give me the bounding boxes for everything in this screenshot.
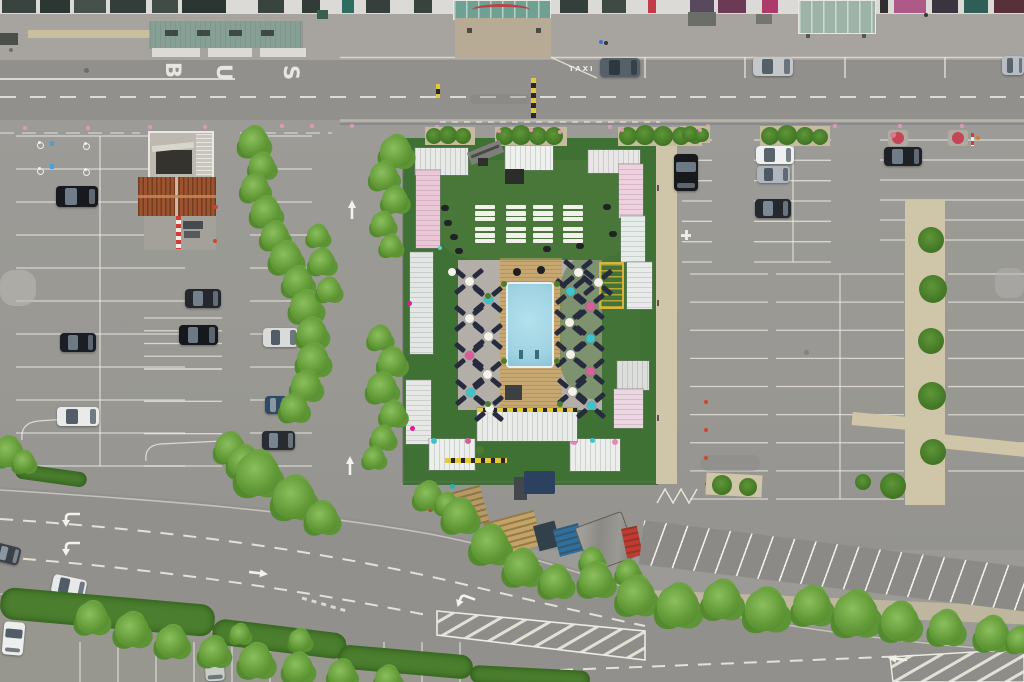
roof-panel: [994, 0, 1024, 13]
picnic-table: [563, 227, 583, 243]
plus-marking: [685, 230, 688, 240]
tree: [283, 653, 313, 682]
tree: [239, 644, 273, 678]
accent: [465, 438, 471, 444]
platform-gap: [252, 48, 260, 57]
bush: [918, 382, 946, 410]
wheelchair-marking-icon: [36, 141, 45, 150]
picnic-table: [475, 205, 495, 221]
plant: [476, 446, 484, 454]
flower: [620, 128, 624, 132]
flower: [698, 128, 702, 132]
roof-panel: [2, 0, 36, 13]
bollard: [86, 126, 89, 129]
picnic-table: [475, 227, 495, 243]
tree: [371, 212, 395, 236]
tree: [199, 637, 229, 667]
tree: [363, 447, 385, 469]
teal-marker: [438, 246, 442, 250]
tree: [13, 451, 35, 473]
roof-panel: [414, 0, 432, 13]
bollard: [148, 125, 151, 128]
lounger-group: [576, 391, 606, 419]
bean-bag: [441, 205, 449, 211]
bean-bag: [609, 231, 617, 237]
red-marker: [213, 239, 217, 243]
shopping-carts: [184, 231, 200, 238]
car: [755, 199, 791, 218]
bush: [919, 275, 947, 303]
bush: [880, 473, 906, 499]
pavement-patch: [0, 270, 36, 306]
bistro-table: [513, 268, 521, 276]
post: [806, 34, 810, 38]
car: [57, 407, 99, 426]
round-table: [448, 268, 456, 276]
bean-bag: [455, 248, 463, 254]
yellow-curb: [445, 458, 507, 463]
car: [56, 186, 98, 207]
crate: [450, 484, 455, 489]
bush: [918, 227, 944, 253]
container-bar: [406, 380, 431, 444]
aerial-parking-lot-photo: BUS TAXI: [0, 0, 1024, 682]
bollard: [23, 126, 26, 129]
entry-mat: [478, 158, 488, 166]
tree: [378, 348, 406, 376]
car: [674, 154, 698, 191]
tree: [156, 626, 188, 658]
bollard: [310, 124, 313, 127]
bollard: [833, 124, 836, 127]
bean-bag: [444, 220, 452, 226]
bush: [855, 474, 871, 490]
cone: [976, 136, 980, 140]
pedestrian: [604, 41, 608, 45]
container-bar: [410, 252, 433, 354]
pedestrian: [924, 13, 928, 17]
car: [884, 147, 922, 166]
bollard: [280, 124, 283, 127]
column: [467, 28, 472, 33]
roof-panel: [560, 0, 588, 13]
plant: [485, 401, 491, 407]
bean-bag: [576, 243, 584, 249]
bistro-table: [537, 266, 545, 274]
tree: [471, 526, 509, 564]
pool-rail: [519, 350, 523, 359]
bean-bag: [603, 204, 611, 210]
roof-panel: [152, 0, 178, 13]
tree: [834, 592, 878, 636]
tree: [881, 603, 919, 641]
roof-panel: [880, 0, 888, 13]
bollard: [960, 124, 963, 127]
car: [756, 146, 794, 164]
bush: [653, 126, 673, 146]
tree: [370, 162, 398, 190]
canopy-tent: [524, 471, 555, 494]
shelter-seat: [229, 30, 242, 36]
container-bar: [627, 262, 652, 309]
pool-rail: [535, 350, 539, 359]
bush: [777, 125, 797, 145]
shelter-seat: [165, 30, 178, 36]
bush: [918, 328, 944, 354]
tree: [793, 587, 831, 625]
car: [185, 289, 221, 308]
car: [757, 166, 790, 183]
flower: [497, 129, 501, 133]
platform-gap: [200, 48, 208, 57]
accent: [612, 439, 618, 445]
tree: [307, 225, 329, 247]
wheelchair-marking-icon: [36, 167, 45, 176]
tile-strip: [28, 30, 158, 38]
flowers: [890, 132, 896, 138]
cart-marking-icon: [50, 164, 54, 169]
tree: [367, 373, 397, 403]
car: [753, 57, 793, 76]
cone: [704, 400, 708, 404]
tree: [745, 589, 787, 631]
hedge-row: [470, 665, 591, 682]
hedge-row: [337, 644, 474, 680]
picnic-table: [506, 227, 526, 243]
stage: [505, 169, 524, 184]
bush: [712, 475, 732, 495]
roof-panel: [602, 0, 626, 13]
stair-outline: [148, 131, 214, 179]
striped-pole: [436, 84, 440, 98]
post: [862, 34, 866, 38]
tree: [280, 394, 308, 422]
striped-stick: [971, 133, 974, 146]
shelter-seat: [261, 30, 274, 36]
picnic-table: [506, 205, 526, 221]
magenta-marker: [407, 301, 412, 306]
car: [179, 325, 218, 345]
picnic-table: [533, 227, 553, 243]
roof-panel: [894, 0, 926, 13]
cone: [704, 428, 708, 432]
roof-panel: [40, 0, 70, 13]
tree: [289, 629, 311, 651]
post: [657, 185, 659, 191]
tree: [328, 660, 356, 682]
grill: [505, 385, 522, 400]
magenta-marker: [410, 426, 415, 431]
tree: [317, 278, 341, 302]
roof-band: [138, 195, 216, 198]
roof-panel: [258, 0, 284, 13]
red-marker: [214, 205, 218, 209]
striped-pole: [531, 78, 536, 118]
post: [657, 300, 659, 306]
bollard: [350, 124, 353, 127]
bollard: [608, 125, 611, 128]
column: [536, 28, 541, 33]
tree: [368, 326, 392, 350]
pavement-patch: [995, 268, 1024, 298]
car: [0, 542, 22, 566]
tree: [306, 502, 338, 534]
sidewalk-strip: [656, 140, 677, 484]
tree: [579, 563, 613, 597]
container-pink: [416, 170, 440, 248]
bush: [920, 439, 946, 465]
wheelchair-marking-icon: [82, 142, 91, 151]
container-bar: [505, 146, 553, 170]
roof-panel: [366, 0, 390, 13]
flower: [558, 130, 562, 134]
bush: [511, 125, 531, 145]
cart-pole: [176, 216, 181, 249]
picnic-table: [533, 205, 553, 221]
plant: [485, 293, 491, 299]
canopy-red-arc: [472, 4, 530, 16]
bollard: [898, 124, 901, 127]
glass-canopy: [798, 0, 876, 34]
lounger-group: [474, 394, 504, 422]
plant: [554, 358, 560, 364]
pavement-stain: [470, 94, 530, 104]
tree: [703, 581, 741, 619]
bush: [812, 129, 828, 145]
tree: [115, 613, 149, 647]
car: [2, 621, 26, 656]
tree: [617, 577, 655, 615]
bus-platform: [152, 48, 306, 57]
shelter-seat: [197, 30, 210, 36]
picnic-table: [563, 205, 583, 221]
tree: [443, 499, 477, 533]
bush: [739, 478, 757, 496]
plant: [554, 281, 560, 287]
bean-bag: [543, 246, 551, 252]
tree: [929, 611, 963, 645]
pedestrian: [599, 40, 603, 44]
tree: [382, 187, 408, 213]
roof-panel: [964, 0, 988, 13]
manhole: [9, 48, 13, 52]
bush: [455, 128, 471, 144]
plant: [557, 401, 563, 407]
tree: [975, 617, 1009, 651]
car: [262, 431, 295, 450]
roof-sign: [762, 0, 778, 13]
flowers: [952, 132, 964, 144]
plant: [501, 358, 507, 364]
tree: [657, 585, 699, 627]
tree: [380, 401, 406, 427]
accent: [590, 438, 595, 443]
car: [60, 333, 96, 352]
roof-panel: [342, 0, 354, 13]
manhole: [84, 68, 89, 73]
pavement-stain: [700, 455, 760, 471]
cart-marking-icon: [50, 141, 54, 146]
hedge-row: [0, 587, 216, 638]
container-bar: [621, 216, 645, 262]
car: [600, 58, 640, 77]
tree: [1007, 627, 1024, 653]
tree: [540, 566, 572, 598]
manhole: [804, 350, 809, 355]
car: [263, 328, 298, 347]
tree: [309, 249, 335, 275]
flower: [529, 128, 533, 132]
bench: [0, 33, 18, 45]
tree: [230, 624, 250, 644]
post: [657, 415, 659, 421]
plant: [501, 281, 507, 287]
entrance-mat: [688, 12, 716, 26]
shopping-carts: [183, 221, 203, 229]
roof-panel: [718, 0, 746, 13]
tree: [504, 550, 540, 586]
container-pink: [619, 164, 643, 218]
bush: [635, 125, 655, 145]
roof-sign: [648, 0, 656, 13]
trash-bin: [317, 10, 328, 19]
roof-panel: [182, 0, 226, 13]
cone: [704, 456, 708, 460]
wheelchair-marking-icon: [82, 168, 91, 177]
container-pink: [614, 389, 643, 428]
tree: [76, 602, 108, 634]
roof-panel: [74, 0, 106, 13]
car: [1002, 56, 1024, 75]
roof-panel: [110, 0, 146, 13]
tree: [380, 235, 402, 257]
entrance-mat: [756, 14, 772, 24]
container-bar: [617, 361, 649, 390]
entrance-plaza: [455, 18, 551, 58]
roof-panel: [932, 0, 958, 13]
bean-bag: [450, 234, 458, 240]
scene-objects: [0, 0, 1024, 682]
accent: [431, 438, 437, 444]
bollard: [203, 125, 206, 128]
